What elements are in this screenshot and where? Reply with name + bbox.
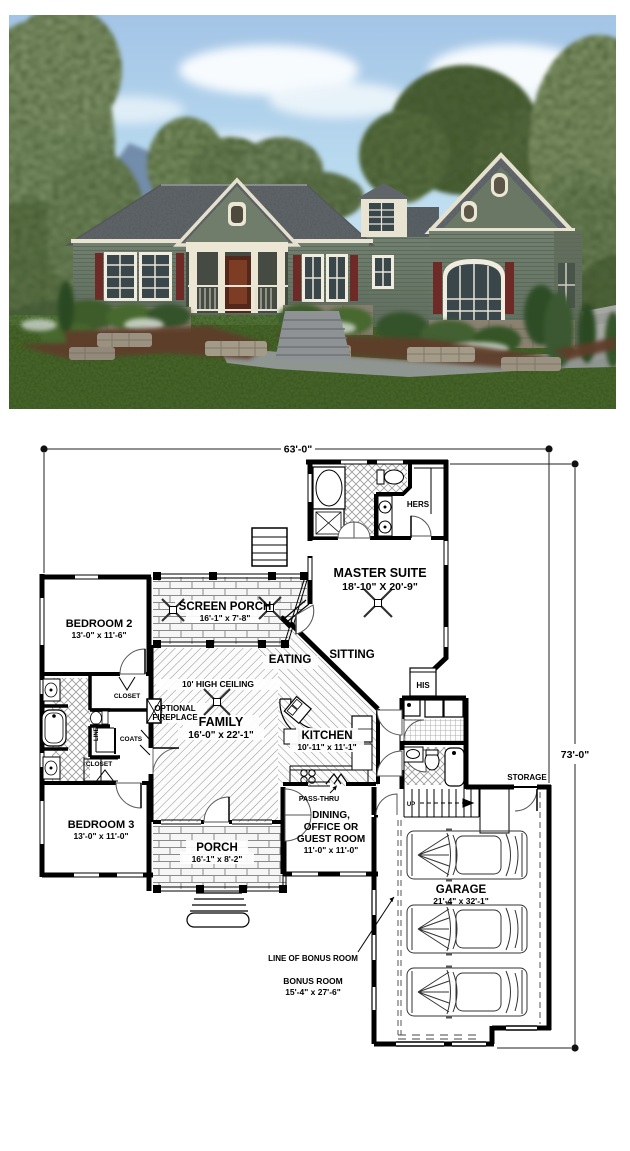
svg-text:73'-0": 73'-0" [561, 749, 590, 761]
svg-text:10' HIGH CEILING: 10' HIGH CEILING [182, 679, 254, 689]
svg-text:13'-0" x 11'-0": 13'-0" x 11'-0" [73, 831, 128, 841]
svg-text:PORCH: PORCH [196, 842, 238, 854]
svg-text:HIS: HIS [416, 681, 430, 690]
svg-text:13'-0" x 11'-6": 13'-0" x 11'-6" [71, 630, 126, 640]
svg-text:EATING: EATING [269, 654, 312, 666]
svg-text:MASTER SUITE: MASTER SUITE [333, 566, 426, 580]
svg-text:10'-11" x 11'-1": 10'-11" x 11'-1" [297, 742, 356, 752]
svg-text:FIREPLACE: FIREPLACE [152, 713, 198, 722]
svg-text:BONUS ROOM: BONUS ROOM [283, 976, 343, 986]
svg-text:GARAGE: GARAGE [436, 884, 487, 896]
svg-text:63'-0": 63'-0" [284, 444, 313, 456]
svg-text:BEDROOM 3: BEDROOM 3 [68, 819, 135, 831]
svg-text:OFFICE OR: OFFICE OR [304, 822, 359, 833]
svg-text:OPTIONAL: OPTIONAL [154, 704, 195, 713]
svg-text:SITTING: SITTING [329, 649, 374, 661]
svg-text:GUEST ROOM: GUEST ROOM [297, 834, 365, 845]
svg-text:KITCHEN: KITCHEN [301, 730, 352, 742]
svg-text:COATS: COATS [120, 736, 143, 743]
svg-text:16'-0" x 22'-1": 16'-0" x 22'-1" [188, 730, 254, 741]
svg-text:BEDROOM 2: BEDROOM 2 [66, 618, 133, 630]
svg-text:18'-10" X 20'-9": 18'-10" X 20'-9" [342, 581, 418, 593]
svg-text:16'-1" x 8'-2": 16'-1" x 8'-2" [192, 854, 243, 864]
svg-text:LINE OF BONUS ROOM: LINE OF BONUS ROOM [268, 954, 358, 963]
svg-text:CLOSET: CLOSET [114, 693, 140, 700]
svg-text:UP: UP [407, 802, 415, 808]
svg-text:LINEN: LINEN [94, 723, 100, 741]
svg-text:SCREEN PORCH: SCREEN PORCH [179, 601, 272, 613]
svg-text:CLOSET: CLOSET [86, 761, 112, 768]
svg-text:FAMILY: FAMILY [199, 715, 244, 729]
svg-text:STORAGE: STORAGE [507, 773, 547, 782]
svg-text:15'-4" x 27'-6": 15'-4" x 27'-6" [285, 987, 341, 997]
svg-text:HERS: HERS [407, 500, 430, 509]
svg-text:PASS-THRU: PASS-THRU [299, 796, 339, 803]
svg-text:16'-1" x 7'-8": 16'-1" x 7'-8" [200, 613, 251, 623]
svg-text:DINING,: DINING, [312, 810, 350, 821]
svg-text:11'-0" x 11'-0": 11'-0" x 11'-0" [304, 845, 359, 855]
svg-text:21'-4" x 32'-1": 21'-4" x 32'-1" [433, 896, 489, 906]
